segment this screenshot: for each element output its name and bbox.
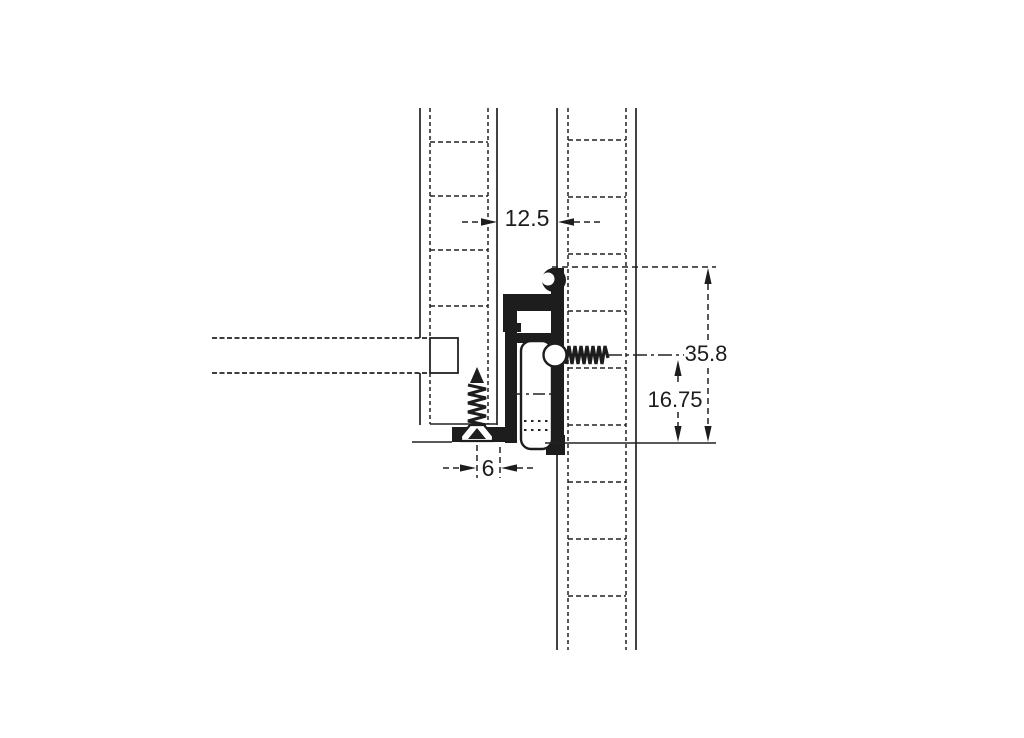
screw-threads	[566, 346, 608, 364]
drawer-side-panel	[412, 108, 497, 442]
arrowhead-right	[460, 464, 476, 471]
arrowhead-left	[558, 218, 574, 226]
arrowhead-down	[704, 426, 711, 442]
screw-tip	[470, 367, 484, 383]
dimension-edge-offset: 6	[443, 445, 533, 481]
arrowhead-up	[704, 268, 711, 284]
rail-top-flange	[505, 294, 563, 311]
dimension-label-panel-gap: 12.5	[505, 205, 550, 231]
drawer-rail-web	[505, 311, 517, 443]
cabinet-side-panel	[557, 108, 636, 650]
arrowhead-up	[674, 360, 681, 376]
drawer-slide-cross-section-diagram: 12.5 35.8 16.75 6	[0, 0, 1024, 738]
dimension-label-total-height: 35.8	[685, 341, 728, 366]
arrowhead-right	[481, 218, 497, 226]
screw-head	[544, 344, 567, 367]
arrowhead-down	[674, 426, 681, 442]
arrowhead-left	[501, 464, 517, 471]
drawer-bottom-end-cap	[430, 338, 458, 373]
dimension-panel-gap: 12.5	[462, 205, 600, 231]
technical-drawing-canvas: 12.5 35.8 16.75 6	[0, 0, 1024, 738]
mounting-screw-horizontal	[544, 344, 685, 367]
dimension-label-edge-offset: 6	[482, 455, 495, 481]
dimension-label-axis-height: 16.75	[647, 387, 702, 412]
screw-threads	[468, 385, 486, 425]
drawer-bottom-panel	[212, 338, 458, 373]
